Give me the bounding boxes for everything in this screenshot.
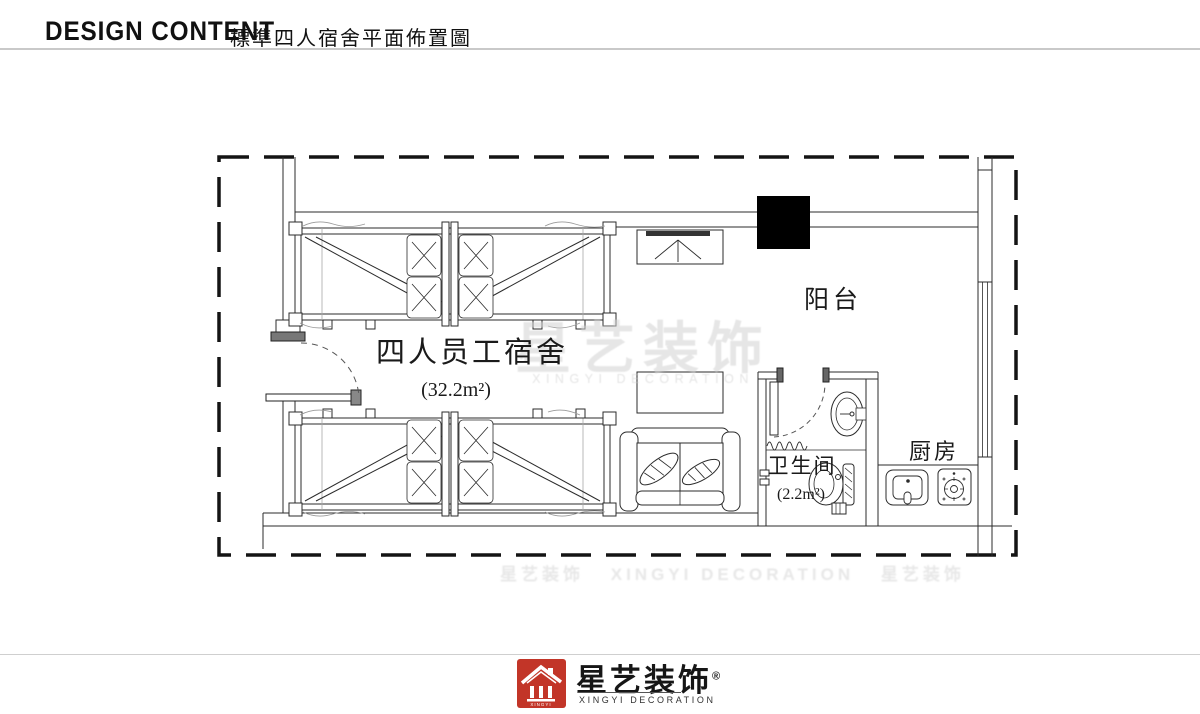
floor-plan: 星艺装饰 XINGYI DECORATION 星艺装饰 XINGYI DECOR…	[0, 0, 1200, 714]
sofa	[620, 428, 740, 511]
window-right	[978, 282, 992, 457]
structural-column	[757, 196, 810, 249]
entry-door	[266, 320, 361, 405]
bathroom-door	[770, 382, 825, 437]
brand-name: 星艺装饰®	[576, 655, 723, 700]
brand-name-en: XINGYI DECORATION	[579, 695, 716, 705]
brand-underline	[578, 692, 681, 693]
house-icon: XINGYI	[517, 659, 566, 708]
logo-small-text: XINGYI	[530, 702, 551, 707]
brand-logo: XINGYI	[517, 659, 566, 708]
svg-text:星艺装饰 XINGYI DECORATION: 星艺装饰 XINGYI DECORATION 星艺装饰	[500, 564, 965, 584]
shower-curtain	[767, 442, 807, 450]
bathroom-area: (2.2m²)	[777, 486, 825, 503]
wash-basin	[831, 392, 866, 436]
balcony-cabinet	[637, 230, 723, 264]
bunk-bed-lower	[289, 409, 616, 516]
dorm-room-label: 四人员工宿舍	[376, 336, 568, 369]
dorm-room-area: (32.2m²)	[421, 379, 491, 401]
watermark-brand-en: XINGYI DECORATION	[532, 372, 754, 386]
balcony-label: 阳台	[804, 286, 862, 314]
gas-stove	[938, 469, 971, 505]
registered-mark: ®	[712, 671, 723, 683]
kitchen	[878, 465, 978, 505]
paper-holder	[760, 479, 769, 485]
bathroom-label: 卫生间	[768, 454, 837, 478]
kitchen-sink	[886, 470, 928, 505]
watermark-bottom: 星艺装饰 XINGYI DECORATION 星艺装饰	[500, 564, 965, 584]
design-sheet: DESIGN CONTENT 標準四人宿舍平面佈置圖	[0, 0, 1200, 714]
bunk-bed-upper	[289, 222, 616, 329]
kitchen-label: 厨房	[909, 439, 959, 464]
